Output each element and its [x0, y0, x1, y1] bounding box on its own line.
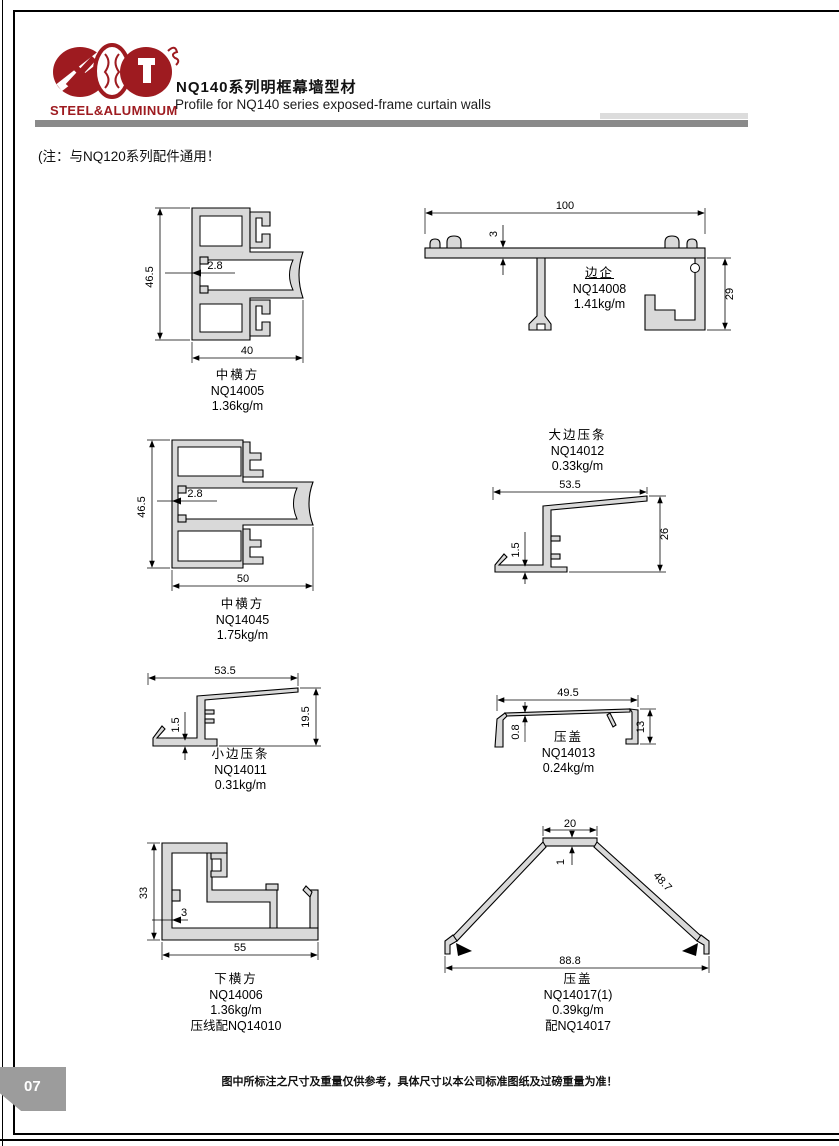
left-slope [453, 842, 546, 941]
right-lip [310, 890, 318, 928]
page-title-en: Profile for NQ140 series exposed-frame c… [175, 97, 491, 112]
dim-height: 26 [659, 528, 671, 540]
t-tab [266, 884, 278, 890]
dim-width: 55 [234, 942, 246, 954]
logo-text: STEEL&ALUMINUM [50, 103, 178, 118]
dim-thickness: 3 [181, 907, 187, 919]
dim-width: 50 [237, 573, 249, 585]
profile-extra: 压线配NQ14010 [176, 1019, 296, 1035]
profile-name: 中横方 [185, 597, 300, 613]
groove-hook-top [250, 212, 270, 248]
profile-label-nq14017-1: 压盖 NQ14017(1) 0.39kg/m 配NQ14017 [518, 972, 638, 1034]
profile-drawing-nq14017-1: 20 1 48.7 88.8 [430, 822, 720, 980]
right-barb [682, 943, 698, 956]
left-foot [445, 935, 457, 954]
dim-thickness: 1.5 [170, 717, 182, 732]
logo-emblem [53, 45, 178, 97]
dim-thickness: 2.8 [207, 260, 222, 272]
left-leg [495, 713, 507, 747]
profile-code: NQ14011 [183, 763, 298, 779]
groove-hook-top [211, 853, 227, 877]
profile-code: NQ14017(1) [518, 988, 638, 1004]
dim-width: 100 [556, 200, 574, 212]
groove-hook-bottom [243, 529, 263, 564]
profile-label-nq14006: 下横方 NQ14006 1.36kg/m 压线配NQ14010 [176, 972, 296, 1034]
dim-width: 40 [241, 345, 253, 357]
profile-extra: 配NQ14017 [518, 1019, 638, 1035]
top-cap [543, 838, 597, 846]
profile-code: NQ14045 [185, 613, 300, 629]
divider-bar [35, 120, 748, 127]
profile-label-nq14008: 边企 NQ14008 1.41kg/m [542, 266, 657, 313]
profile-drawing-nq14045: 46.5 2.8 50 [135, 428, 355, 598]
profile-name: 边企 [542, 266, 657, 282]
profile-code: NQ14006 [176, 988, 296, 1004]
profile-name: 压盖 [518, 972, 638, 988]
dim-thickness: 3 [488, 231, 500, 237]
profile-name: 中横方 [180, 368, 295, 384]
dim-height: 46.5 [144, 266, 156, 287]
groove-hook-bottom [250, 300, 270, 336]
page-number: 07 [24, 1078, 41, 1095]
dim-thickness: 2.8 [187, 488, 202, 500]
profile-label-nq14005: 中横方 NQ14005 1.36kg/m [180, 368, 295, 415]
snap-tooth [607, 713, 616, 727]
dim-height: 46.5 [136, 496, 148, 517]
dim-height: 13 [635, 721, 647, 733]
right-slope [594, 842, 701, 941]
profile-drawing-nq14012: 53.5 1.5 26 [478, 470, 678, 588]
dim-width: 53.5 [214, 665, 235, 677]
right-lip-curl [303, 886, 312, 897]
profile-weight: 1.36kg/m [180, 399, 295, 415]
dim-slope: 48.7 [651, 870, 674, 894]
profile-weight: 0.24kg/m [511, 761, 626, 777]
profile-weight: 0.39kg/m [518, 1003, 638, 1019]
page-number-badge: 07 [0, 1067, 66, 1111]
compatibility-note: (注：与NQ120系列配件通用！ [38, 145, 220, 165]
profile-name: 下横方 [176, 972, 296, 988]
profile-name: 压盖 [511, 730, 626, 746]
groove-hook-top [243, 442, 263, 477]
profile-weight: 1.36kg/m [176, 1003, 296, 1019]
profile-name: 小边压条 [183, 747, 298, 763]
catalog-page: STEEL&ALUMINUM NQ140系列明框幕墙型材 Profile for… [0, 0, 839, 1146]
dim-width: 88.8 [559, 955, 580, 967]
profile-code: NQ14008 [542, 282, 657, 298]
dim-top-width: 20 [564, 818, 576, 830]
profile-drawing-nq14006: 33 3 55 [140, 835, 340, 965]
right-foot [697, 935, 709, 954]
profile-weight: 1.41kg/m [542, 297, 657, 313]
profile-code: NQ14005 [180, 384, 295, 400]
dim-width: 53.5 [559, 479, 580, 491]
profile-weight: 1.75kg/m [185, 628, 300, 644]
profile-name: 大边压条 [520, 428, 635, 444]
footer-disclaimer: 图中所标注之尺寸及重量仅供参考，具体尺寸以本公司标准图纸及过磅重量为准！ [13, 1073, 826, 1089]
profile-label-nq14011: 小边压条 NQ14011 0.31kg/m [183, 747, 298, 794]
profile-label-nq14045: 中横方 NQ14045 1.75kg/m [185, 597, 300, 644]
wall-notch [172, 890, 180, 901]
dim-height: 19.5 [300, 706, 312, 727]
profile-drawing-nq14005: 46.5 2.8 40 [135, 196, 325, 371]
dim-thickness: 1 [555, 859, 567, 865]
left-barb [456, 943, 472, 956]
profile-code: NQ14012 [520, 444, 635, 460]
divider-highlight [600, 113, 748, 119]
profile-code: NQ14013 [511, 746, 626, 762]
profile-label-nq14012: 大边压条 NQ14012 0.33kg/m [520, 428, 635, 475]
dim-height: 33 [138, 887, 150, 899]
dim-thickness: 1.5 [510, 542, 522, 557]
profile-weight: 0.31kg/m [183, 778, 298, 794]
dim-height: 29 [724, 288, 736, 300]
profile-label-nq14013: 压盖 NQ14013 0.24kg/m [511, 730, 626, 777]
dim-width: 49.5 [557, 687, 578, 699]
outer-border-left [2, 0, 3, 1146]
company-logo: STEEL&ALUMINUM [50, 42, 180, 120]
outer-border-bottom [0, 1139, 839, 1141]
page-title-zh: NQ140系列明框幕墙型材 [176, 76, 357, 97]
